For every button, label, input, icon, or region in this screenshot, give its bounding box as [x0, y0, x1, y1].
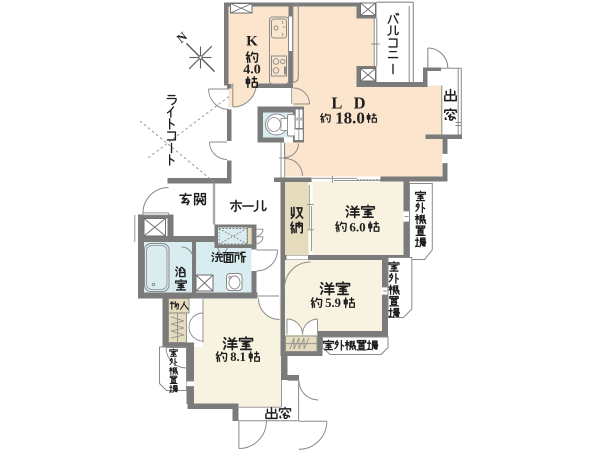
svg-text:4.0: 4.0 — [243, 63, 261, 78]
svg-text:6.0: 6.0 — [349, 220, 365, 235]
svg-text:8.1: 8.1 — [230, 350, 246, 364]
svg-text:5.9: 5.9 — [325, 296, 341, 310]
svg-text:K: K — [246, 34, 258, 50]
svg-text:18.0: 18.0 — [335, 109, 365, 128]
